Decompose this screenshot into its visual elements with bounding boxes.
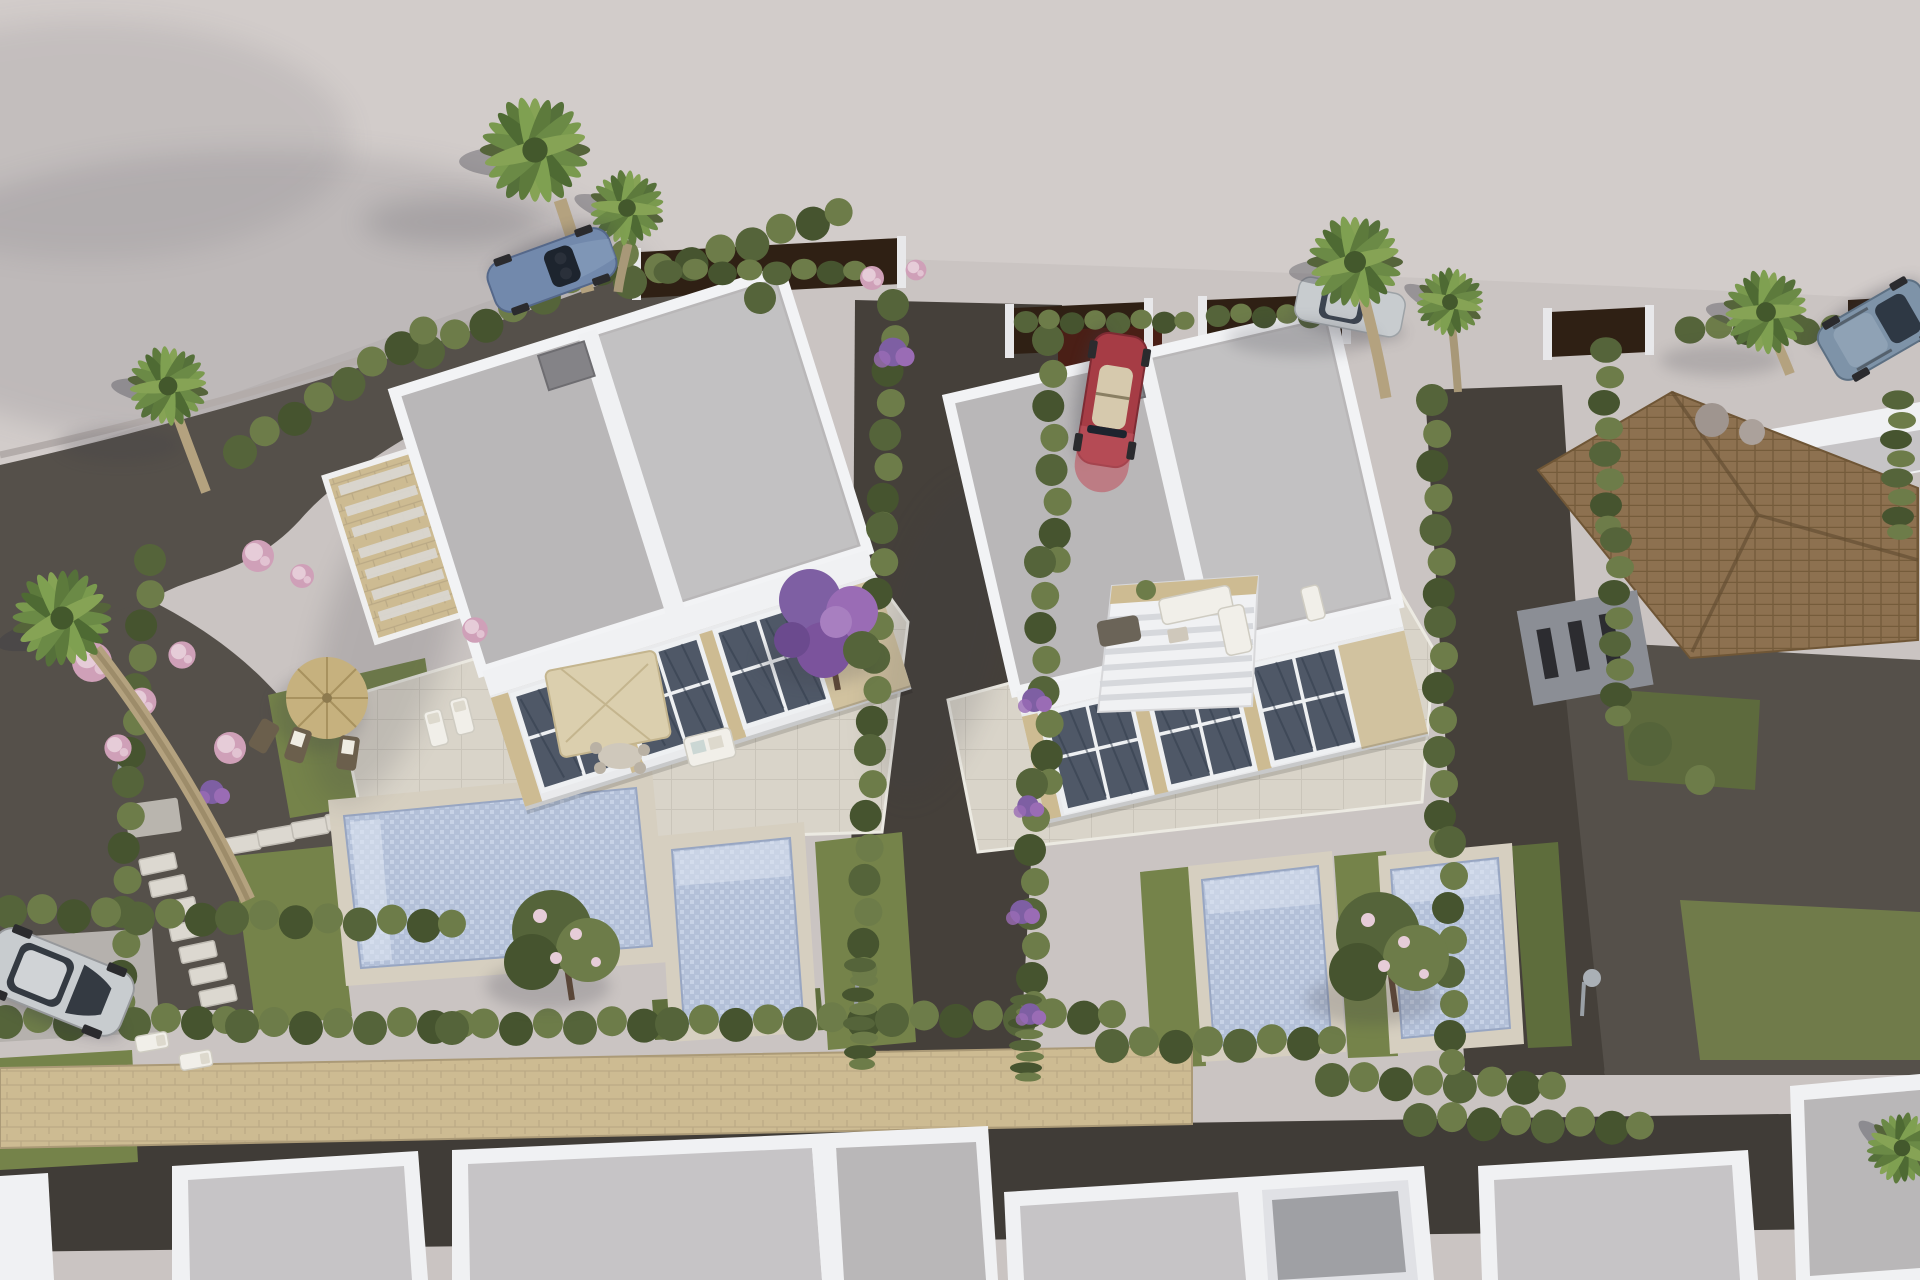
scene-canvas — [0, 0, 1920, 1280]
house-d — [1478, 1150, 1758, 1280]
aerial-render-scene — [0, 0, 1920, 1280]
house-b — [452, 1126, 998, 1280]
boulder — [1739, 419, 1765, 445]
house-a — [172, 1151, 428, 1280]
boulder — [1695, 403, 1729, 437]
